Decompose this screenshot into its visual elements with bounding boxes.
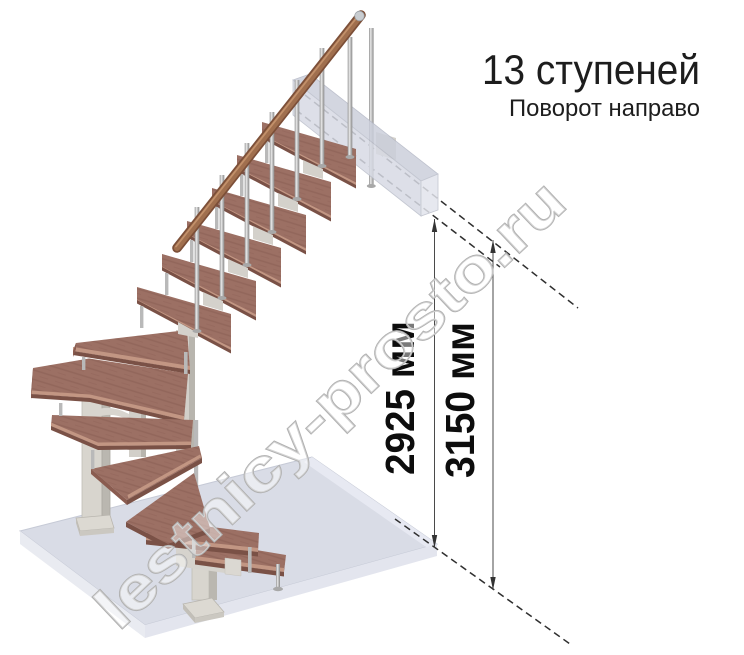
svg-text:3150 мм: 3150 мм: [437, 322, 483, 478]
svg-text:Поворот направо: Поворот направо: [509, 95, 700, 122]
svg-text:13 ступеней: 13 ступеней: [482, 46, 700, 93]
